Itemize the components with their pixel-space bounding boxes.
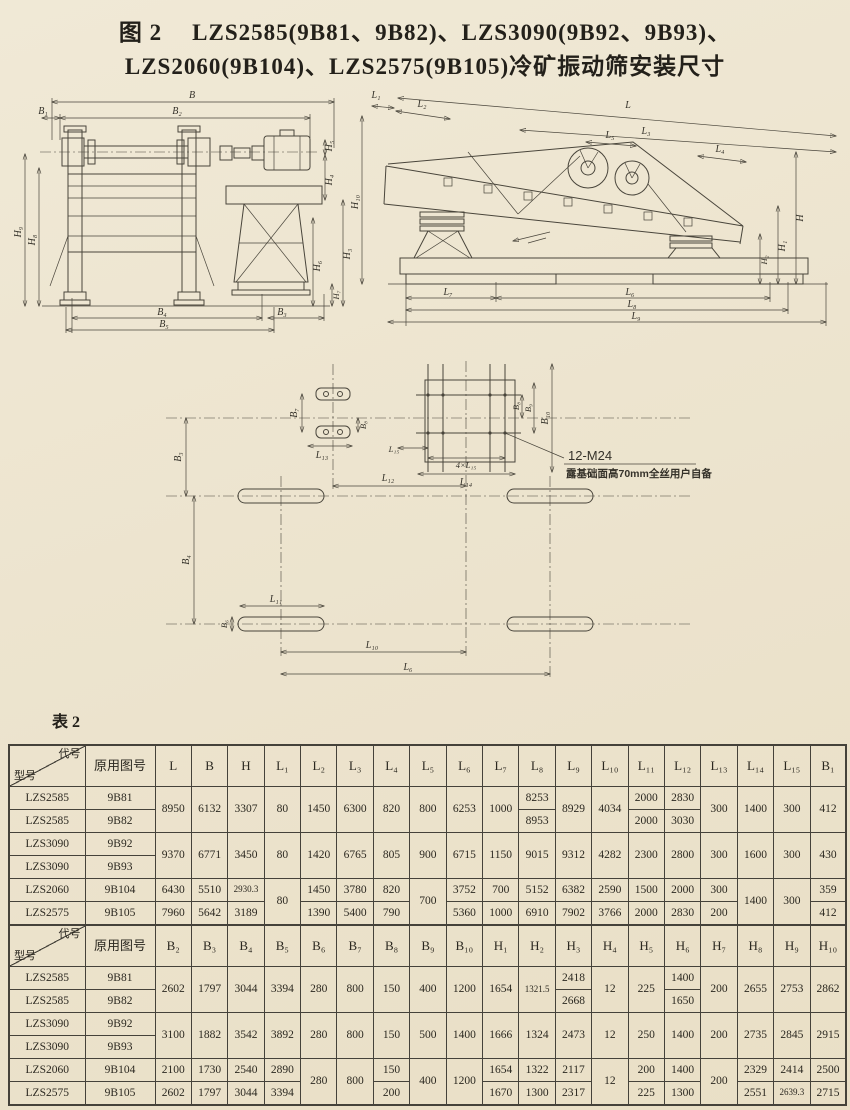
model-cell: LZS3090 xyxy=(9,1013,85,1036)
header-cell: B₄ xyxy=(228,925,264,967)
dim-value-cell: 805 xyxy=(373,833,409,879)
dim-value-cell: 225 xyxy=(628,967,664,1013)
dim-label: H₇ xyxy=(331,290,341,300)
model-cell: LZS3090 xyxy=(9,1036,85,1059)
dim-value-cell: 1200 xyxy=(446,967,482,1013)
dim-value-cell: 5360 xyxy=(446,902,482,926)
dim-value-cell: 1450 xyxy=(301,787,337,833)
figure-no-cell: 9B104 xyxy=(85,1059,155,1082)
dim-value-cell: 700 xyxy=(483,879,519,902)
header-cell: B xyxy=(191,745,227,787)
dim-value-cell: 1600 xyxy=(737,833,773,879)
figure-no-cell: 9B82 xyxy=(85,990,155,1013)
dim-value-cell: 1654 xyxy=(483,967,519,1013)
model-cell: LZS2585 xyxy=(9,990,85,1013)
dim-value-cell: 300 xyxy=(774,879,810,926)
dim-value-cell: 3307 xyxy=(228,787,264,833)
dim-value-cell: 1500 xyxy=(628,879,664,902)
dim-value-cell: 250 xyxy=(628,1013,664,1059)
dim-value-cell: 1321.5 xyxy=(519,967,555,1013)
dim-value-cell: 1797 xyxy=(191,967,227,1013)
dim-value-cell: 280 xyxy=(301,967,337,1013)
dim-value-cell: 200 xyxy=(701,1013,737,1059)
dim-value-cell: 1420 xyxy=(301,833,337,879)
dim-value-cell: 200 xyxy=(701,967,737,1013)
dim-value-cell: 1882 xyxy=(191,1013,227,1059)
header-corner-cell: 代号型号 xyxy=(9,925,85,967)
header-cell: L₁₄ xyxy=(737,745,773,787)
header-cell: L₁₀ xyxy=(592,745,628,787)
figure-no-cell: 9B105 xyxy=(85,902,155,926)
dim-value-cell: 6715 xyxy=(446,833,482,879)
dim-value-cell: 2890 xyxy=(264,1059,300,1082)
dim-label: L₄ xyxy=(714,144,725,155)
dim-value-cell: 820 xyxy=(373,787,409,833)
side-view-drawing: L L₁ L₂ L₃ L₅ L₄ xyxy=(348,86,848,346)
header-cell: H₄ xyxy=(592,925,628,967)
dim-label: L₉ xyxy=(630,311,641,322)
dim-value-cell: 1000 xyxy=(483,787,519,833)
dim-value-cell: 1300 xyxy=(664,1082,700,1106)
header-cell: L₂ xyxy=(301,745,337,787)
dim-label: L₆ xyxy=(624,287,635,298)
dim-value-cell: 3892 xyxy=(264,1013,300,1059)
dim-value-cell: 2414 xyxy=(774,1059,810,1082)
model-cell: LZS3090 xyxy=(9,856,85,879)
dim-label: B₃ xyxy=(277,307,287,318)
dim-value-cell: 2602 xyxy=(155,1082,191,1106)
dim-value-cell: 6765 xyxy=(337,833,373,879)
dim-value-cell: 7960 xyxy=(155,902,191,926)
dim-value-cell: 300 xyxy=(701,833,737,879)
figure-no-cell: 9B105 xyxy=(85,1082,155,1106)
dim-value-cell: 3100 xyxy=(155,1013,191,1059)
dim-value-cell: 800 xyxy=(337,967,373,1013)
dim-value-cell: 800 xyxy=(337,1059,373,1106)
header-cell: B₆ xyxy=(301,925,337,967)
header-cell: L₄ xyxy=(373,745,409,787)
header-cell: L xyxy=(155,745,191,787)
dim-value-cell: 2473 xyxy=(555,1013,591,1059)
dim-value-cell: 150 xyxy=(373,1059,409,1082)
dim-value-cell: 3780 xyxy=(337,879,373,902)
dim-value-cell: 6253 xyxy=(446,787,482,833)
dim-value-cell: 5642 xyxy=(191,902,227,926)
header-cell: 原用图号 xyxy=(85,745,155,787)
dim-value-cell: 2418 xyxy=(555,967,591,990)
dim-value-cell: 2300 xyxy=(628,833,664,879)
dim-value-cell: 400 xyxy=(410,967,446,1013)
dim-value-cell: 2000 xyxy=(628,810,664,833)
dim-value-cell: 3044 xyxy=(228,967,264,1013)
dim-value-cell: 300 xyxy=(701,879,737,902)
model-cell: LZS2585 xyxy=(9,810,85,833)
model-cell: LZS2060 xyxy=(9,879,85,902)
dim-value-cell: 200 xyxy=(701,1059,737,1106)
dim-value-cell: 1654 xyxy=(483,1059,519,1082)
dim-value-cell: 900 xyxy=(410,833,446,879)
dim-value-cell: 80 xyxy=(264,787,300,833)
header-cell: H₈ xyxy=(737,925,773,967)
dim-value-cell: 150 xyxy=(373,967,409,1013)
header-cell: B₂ xyxy=(155,925,191,967)
dim-value-cell: 400 xyxy=(410,1059,446,1106)
dim-value-cell: 2715 xyxy=(810,1082,846,1106)
dim-value-cell: 412 xyxy=(810,787,846,833)
dim-value-cell: 12 xyxy=(592,1059,628,1106)
dim-value-cell: 300 xyxy=(774,787,810,833)
dim-label: L xyxy=(624,100,631,111)
dim-value-cell: 280 xyxy=(301,1013,337,1059)
header-cell: H₅ xyxy=(628,925,664,967)
dim-value-cell: 1400 xyxy=(664,1013,700,1059)
model-cell: LZS2060 xyxy=(9,1059,85,1082)
dim-value-cell: 6300 xyxy=(337,787,373,833)
figure-number: 图 2 xyxy=(119,20,162,45)
dim-label: L₁₅ xyxy=(388,444,400,454)
header-cell: L₁₂ xyxy=(664,745,700,787)
dim-value-cell: 3044 xyxy=(228,1082,264,1106)
dim-value-cell: 1650 xyxy=(664,990,700,1013)
dim-value-cell: 4034 xyxy=(592,787,628,833)
dim-value-cell: 5152 xyxy=(519,879,555,902)
dim-label: B₆ xyxy=(219,620,229,628)
header-cell: B₇ xyxy=(337,925,373,967)
header-cell: L₁₅ xyxy=(774,745,810,787)
dim-value-cell: 8253 xyxy=(519,787,555,810)
header-cell: H₁ xyxy=(483,925,519,967)
table-label: 表 2 xyxy=(52,708,80,732)
dim-value-cell: 700 xyxy=(410,879,446,926)
dim-value-cell: 200 xyxy=(628,1059,664,1082)
corner-label-top: 代号 xyxy=(59,749,81,761)
header-cell: B₁ xyxy=(810,745,846,787)
model-cell: LZS2575 xyxy=(9,902,85,926)
corner-label-bottom: 型号 xyxy=(14,771,36,783)
dim-value-cell: 200 xyxy=(373,1082,409,1106)
dim-label: 4×L₁₅ xyxy=(456,460,477,470)
dim-value-cell: 3752 xyxy=(446,879,482,902)
dim-value-cell: 790 xyxy=(373,902,409,926)
model-cell: LZS2575 xyxy=(9,1082,85,1106)
figure-no-cell: 9B92 xyxy=(85,1013,155,1036)
dim-value-cell: 6382 xyxy=(555,879,591,902)
dim-value-cell: 1000 xyxy=(483,902,519,926)
dim-value-cell: 500 xyxy=(410,1013,446,1059)
header-cell: H₇ xyxy=(701,925,737,967)
dim-value-cell: 1324 xyxy=(519,1013,555,1059)
anchor-note-label: 露基础面高70mm全丝用户自备 xyxy=(566,467,712,480)
dim-value-cell: 430 xyxy=(810,833,846,879)
dim-value-cell: 12 xyxy=(592,1013,628,1059)
dim-value-cell: 2602 xyxy=(155,967,191,1013)
dim-value-cell: 2551 xyxy=(737,1082,773,1106)
dim-value-cell: 1400 xyxy=(737,787,773,833)
dim-label: B xyxy=(189,90,195,101)
dim-value-cell: 2590 xyxy=(592,879,628,902)
dim-value-cell: 2862 xyxy=(810,967,846,1013)
header-cell: B₅ xyxy=(264,925,300,967)
dim-value-cell: 300 xyxy=(774,833,810,879)
header-cell: H xyxy=(228,745,264,787)
dim-label: H₉ xyxy=(13,226,24,238)
figure-title: 图 2LZS2585(9B81、9B82)、LZS3090(9B92、9B93)… xyxy=(0,16,850,84)
header-cell: L₃ xyxy=(337,745,373,787)
dim-value-cell: 3189 xyxy=(228,902,264,926)
dim-value-cell: 150 xyxy=(373,1013,409,1059)
dim-value-cell: 225 xyxy=(628,1082,664,1106)
header-corner-cell: 代号型号 xyxy=(9,745,85,787)
dim-label: L₁₁ xyxy=(269,594,283,605)
figure-title-line1: 图 2LZS2585(9B81、9B82)、LZS3090(9B92、9B93)… xyxy=(0,16,850,50)
dim-label: B₃ xyxy=(173,452,184,462)
figure-no-cell: 9B93 xyxy=(85,1036,155,1059)
dim-label: B₂ xyxy=(172,106,182,117)
dim-value-cell: 2100 xyxy=(155,1059,191,1082)
dim-value-cell: 2329 xyxy=(737,1059,773,1082)
dim-value-cell: 800 xyxy=(337,1013,373,1059)
dim-label: H₄ xyxy=(324,174,335,186)
header-cell: B₁₀ xyxy=(446,925,482,967)
dim-value-cell: 5400 xyxy=(337,902,373,926)
dim-value-cell: 2753 xyxy=(774,967,810,1013)
dim-value-cell: 2735 xyxy=(737,1013,773,1059)
dim-value-cell: 1300 xyxy=(519,1082,555,1106)
dim-value-cell: 820 xyxy=(373,879,409,902)
header-cell: B₈ xyxy=(373,925,409,967)
dim-label: L₁₂ xyxy=(381,473,395,484)
dim-value-cell: 6132 xyxy=(191,787,227,833)
corner-label-top: 代号 xyxy=(59,929,81,941)
dim-value-cell: 2830 xyxy=(664,902,700,926)
dim-value-cell: 2830 xyxy=(664,787,700,810)
dim-value-cell: 3394 xyxy=(264,967,300,1013)
dimension-table: 代号型号原用图号LBHL₁L₂L₃L₄L₅L₆L₇L₈L₉L₁₀L₁₁L₁₂L₁… xyxy=(8,744,847,1106)
dim-value-cell: 2317 xyxy=(555,1082,591,1106)
dim-value-cell: 80 xyxy=(264,833,300,879)
dim-value-cell: 2845 xyxy=(774,1013,810,1059)
dim-value-cell: 5510 xyxy=(191,879,227,902)
dim-label: H₂ xyxy=(759,255,769,265)
dim-value-cell: 3766 xyxy=(592,902,628,926)
dim-value-cell: 8929 xyxy=(555,787,591,833)
dim-value-cell: 2655 xyxy=(737,967,773,1013)
dim-value-cell: 8950 xyxy=(155,787,191,833)
dim-label: L₅ xyxy=(604,130,615,141)
figure-no-cell: 9B93 xyxy=(85,856,155,879)
dim-value-cell: 2000 xyxy=(664,879,700,902)
header-cell: L₁₁ xyxy=(628,745,664,787)
dim-label: L₂ xyxy=(416,99,427,110)
dim-value-cell: 6430 xyxy=(155,879,191,902)
dim-value-cell: 3450 xyxy=(228,833,264,879)
dim-value-cell: 1200 xyxy=(446,1059,482,1106)
header-cell: H₃ xyxy=(555,925,591,967)
dim-value-cell: 2000 xyxy=(628,787,664,810)
header-cell: L₁ xyxy=(264,745,300,787)
dim-label: L₈ xyxy=(626,299,637,310)
dim-label: B₈ xyxy=(358,421,368,429)
dim-label: H₆ xyxy=(312,260,323,272)
dim-value-cell: 3030 xyxy=(664,810,700,833)
header-cell: L₇ xyxy=(483,745,519,787)
figure-title-line2: LZS2060(9B104)、LZS2575(9B105)冷矿振动筛安装尺寸 xyxy=(0,50,850,84)
dim-value-cell: 2000 xyxy=(628,902,664,926)
dim-value-cell: 300 xyxy=(701,787,737,833)
header-cell: L₉ xyxy=(555,745,591,787)
dim-value-cell: 1400 xyxy=(664,967,700,990)
dim-value-cell: 8953 xyxy=(519,810,555,833)
dim-label: L₃ xyxy=(640,126,651,137)
figure-no-cell: 9B81 xyxy=(85,967,155,990)
dim-value-cell: 1400 xyxy=(664,1059,700,1082)
dim-value-cell: 6771 xyxy=(191,833,227,879)
dim-label: L₆ xyxy=(402,662,413,673)
model-cell: LZS2585 xyxy=(9,967,85,990)
dim-value-cell: 4282 xyxy=(592,833,628,879)
header-cell: H₂ xyxy=(519,925,555,967)
dim-label: L₇ xyxy=(442,287,453,298)
header-cell: B₃ xyxy=(191,925,227,967)
dim-value-cell: 1670 xyxy=(483,1082,519,1106)
header-cell: 原用图号 xyxy=(85,925,155,967)
dim-value-cell: 2930.3 xyxy=(228,879,264,902)
corner-label-bottom: 型号 xyxy=(14,951,36,963)
dim-label: B₉ xyxy=(523,404,533,412)
dim-value-cell: 2915 xyxy=(810,1013,846,1059)
anchor-spec-label: 12-M24 xyxy=(568,448,612,463)
dim-value-cell: 9015 xyxy=(519,833,555,879)
header-cell: L₆ xyxy=(446,745,482,787)
dim-value-cell: 9370 xyxy=(155,833,191,879)
dim-label: H₈ xyxy=(27,234,38,246)
dim-value-cell: 3394 xyxy=(264,1082,300,1106)
dim-value-cell: 1322 xyxy=(519,1059,555,1082)
figure-no-cell: 9B92 xyxy=(85,833,155,856)
figure-no-cell: 9B104 xyxy=(85,879,155,902)
dim-label: B₁ xyxy=(38,106,48,117)
dim-value-cell: 2639.3 xyxy=(774,1082,810,1106)
dim-value-cell: 359 xyxy=(810,879,846,902)
dim-value-cell: 2500 xyxy=(810,1059,846,1082)
figure-no-cell: 9B82 xyxy=(85,810,155,833)
dim-value-cell: 7902 xyxy=(555,902,591,926)
dim-value-cell: 2117 xyxy=(555,1059,591,1082)
dim-value-cell: 80 xyxy=(264,879,300,926)
dim-label: B₇ xyxy=(289,408,300,418)
dim-label: L₁₀ xyxy=(365,640,379,651)
dim-value-cell: 1730 xyxy=(191,1059,227,1082)
header-cell: L₈ xyxy=(519,745,555,787)
header-cell: B₉ xyxy=(410,925,446,967)
dim-label: B₈ xyxy=(511,402,521,410)
scanned-manual-page: 图 2LZS2585(9B81、9B82)、LZS3090(9B92、9B93)… xyxy=(0,0,850,1110)
dim-value-cell: 1390 xyxy=(301,902,337,926)
dim-value-cell: 2800 xyxy=(664,833,700,879)
dim-label: H₁ xyxy=(777,241,788,253)
front-view-drawing: B B₁ B₂ H₉ H₈ H₅ H₄ H₃ H₆ H₇ xyxy=(12,88,356,338)
dim-value-cell: 800 xyxy=(410,787,446,833)
header-cell: H₆ xyxy=(664,925,700,967)
dim-value-cell: 2668 xyxy=(555,990,591,1013)
model-cell: LZS2585 xyxy=(9,787,85,810)
dim-value-cell: 1666 xyxy=(483,1013,519,1059)
dim-value-cell: 6910 xyxy=(519,902,555,926)
dim-value-cell: 1400 xyxy=(737,879,773,926)
header-cell: L₅ xyxy=(410,745,446,787)
dim-value-cell: 1400 xyxy=(446,1013,482,1059)
dim-value-cell: 200 xyxy=(701,902,737,926)
dim-label: H xyxy=(795,214,806,223)
dim-value-cell: 9312 xyxy=(555,833,591,879)
header-cell: H₁₀ xyxy=(810,925,846,967)
dim-value-cell: 1450 xyxy=(301,879,337,902)
dim-value-cell: 12 xyxy=(592,967,628,1013)
header-cell: L₁₃ xyxy=(701,745,737,787)
dim-value-cell: 3542 xyxy=(228,1013,264,1059)
dim-label: L₁₃ xyxy=(315,450,329,461)
dim-value-cell: 280 xyxy=(301,1059,337,1106)
dim-value-cell: 2540 xyxy=(228,1059,264,1082)
dim-label: H₁₀ xyxy=(350,194,361,210)
model-cell: LZS3090 xyxy=(9,833,85,856)
dim-value-cell: 1797 xyxy=(191,1082,227,1106)
dim-value-cell: 1150 xyxy=(483,833,519,879)
dim-label: H₅ xyxy=(324,140,335,152)
header-cell: H₉ xyxy=(774,925,810,967)
dim-label: B₁₀ xyxy=(540,411,551,425)
foundation-plan-drawing: B₇ L₁₃ B₈ L₁₅ 4×L₁₅ L₁₄ B₈ B₉ B₁₀ 12-M24… xyxy=(136,356,706,691)
dim-value-cell: 412 xyxy=(810,902,846,926)
dim-label: L₁ xyxy=(370,90,380,101)
dim-label: B₄ xyxy=(157,307,167,318)
dim-label: B₅ xyxy=(159,319,169,330)
dim-label: B₄ xyxy=(181,555,192,565)
figure-no-cell: 9B81 xyxy=(85,787,155,810)
